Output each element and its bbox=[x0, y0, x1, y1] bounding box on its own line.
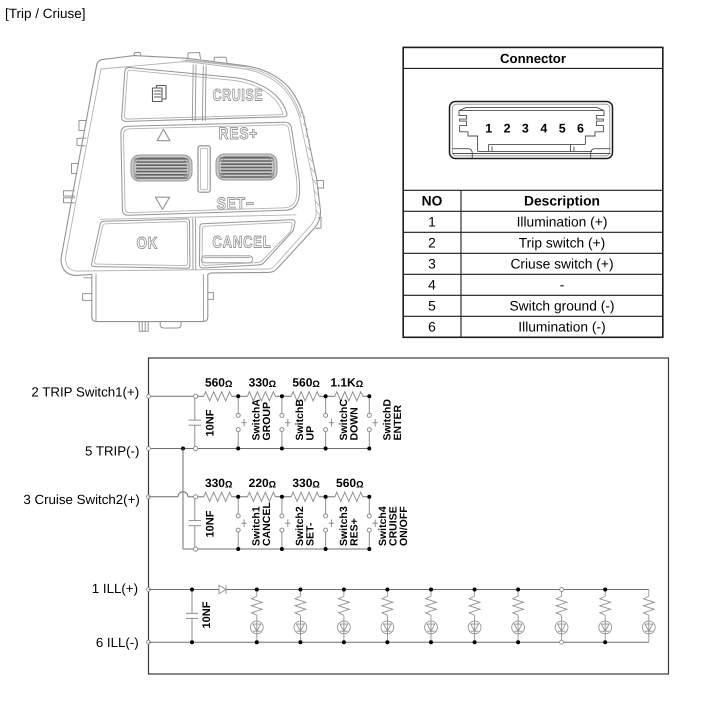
svg-text:5 TRIP(-): 5 TRIP(-) bbox=[85, 443, 139, 458]
svg-text:10NF: 10NF bbox=[204, 510, 216, 537]
svg-text:UP: UP bbox=[305, 426, 317, 441]
svg-text:Illumination (+): Illumination (+) bbox=[517, 215, 608, 230]
svg-text:560Ω: 560Ω bbox=[336, 476, 364, 490]
svg-text:330Ω: 330Ω bbox=[292, 476, 320, 490]
svg-text:ON/OFF: ON/OFF bbox=[398, 506, 410, 546]
svg-text:-: - bbox=[560, 278, 565, 293]
svg-text:[Trip / Criuse]: [Trip / Criuse] bbox=[5, 6, 86, 21]
svg-text:CANCEL: CANCEL bbox=[212, 233, 271, 251]
svg-text:CANCEL: CANCEL bbox=[261, 502, 273, 546]
svg-text:560Ω: 560Ω bbox=[205, 376, 233, 390]
svg-text:Connector: Connector bbox=[500, 51, 566, 66]
svg-text:Criuse switch (+): Criuse switch (+) bbox=[510, 257, 613, 272]
svg-text:220Ω: 220Ω bbox=[249, 476, 277, 490]
svg-text:2: 2 bbox=[428, 236, 436, 251]
svg-text:1: 1 bbox=[485, 122, 492, 136]
svg-text:1 ILL(+): 1 ILL(+) bbox=[92, 581, 138, 596]
svg-text:GROUP: GROUP bbox=[261, 402, 273, 441]
svg-text:330Ω: 330Ω bbox=[205, 476, 233, 490]
svg-text:3 Cruise Switch2(+): 3 Cruise Switch2(+) bbox=[23, 492, 139, 507]
svg-text:6: 6 bbox=[577, 122, 584, 136]
svg-text:1.1KΩ: 1.1KΩ bbox=[330, 376, 363, 390]
svg-text:3: 3 bbox=[428, 257, 436, 272]
svg-text:NO: NO bbox=[422, 194, 443, 209]
svg-text:3: 3 bbox=[522, 122, 529, 136]
svg-text:6: 6 bbox=[428, 320, 436, 335]
svg-text:CRUISE: CRUISE bbox=[213, 87, 264, 105]
svg-text:560Ω: 560Ω bbox=[292, 376, 320, 390]
svg-text:10NF: 10NF bbox=[201, 601, 213, 628]
svg-text:SET-: SET- bbox=[305, 522, 317, 546]
svg-text:DOWN: DOWN bbox=[348, 407, 360, 440]
svg-text:4: 4 bbox=[428, 278, 436, 293]
svg-text:6 ILL(-): 6 ILL(-) bbox=[96, 635, 139, 650]
svg-text:Description: Description bbox=[524, 194, 600, 209]
svg-text:RES+: RES+ bbox=[219, 125, 258, 143]
svg-text:Switch ground (-): Switch ground (-) bbox=[509, 299, 614, 314]
svg-text:Illumination (-): Illumination (-) bbox=[518, 320, 605, 335]
svg-text:2 TRIP Switch1(+): 2 TRIP Switch1(+) bbox=[31, 384, 139, 399]
svg-text:Trip switch (+): Trip switch (+) bbox=[519, 236, 606, 251]
svg-text:RES+: RES+ bbox=[348, 518, 360, 546]
svg-text:1: 1 bbox=[428, 215, 436, 230]
svg-text:2: 2 bbox=[504, 122, 511, 136]
svg-text:5: 5 bbox=[428, 299, 436, 314]
svg-text:4: 4 bbox=[540, 122, 547, 136]
svg-text:ENTER: ENTER bbox=[392, 404, 404, 440]
svg-text:330Ω: 330Ω bbox=[249, 376, 277, 390]
svg-text:10NF: 10NF bbox=[204, 409, 216, 436]
svg-text:OK: OK bbox=[137, 234, 159, 252]
svg-text:5: 5 bbox=[559, 122, 566, 136]
